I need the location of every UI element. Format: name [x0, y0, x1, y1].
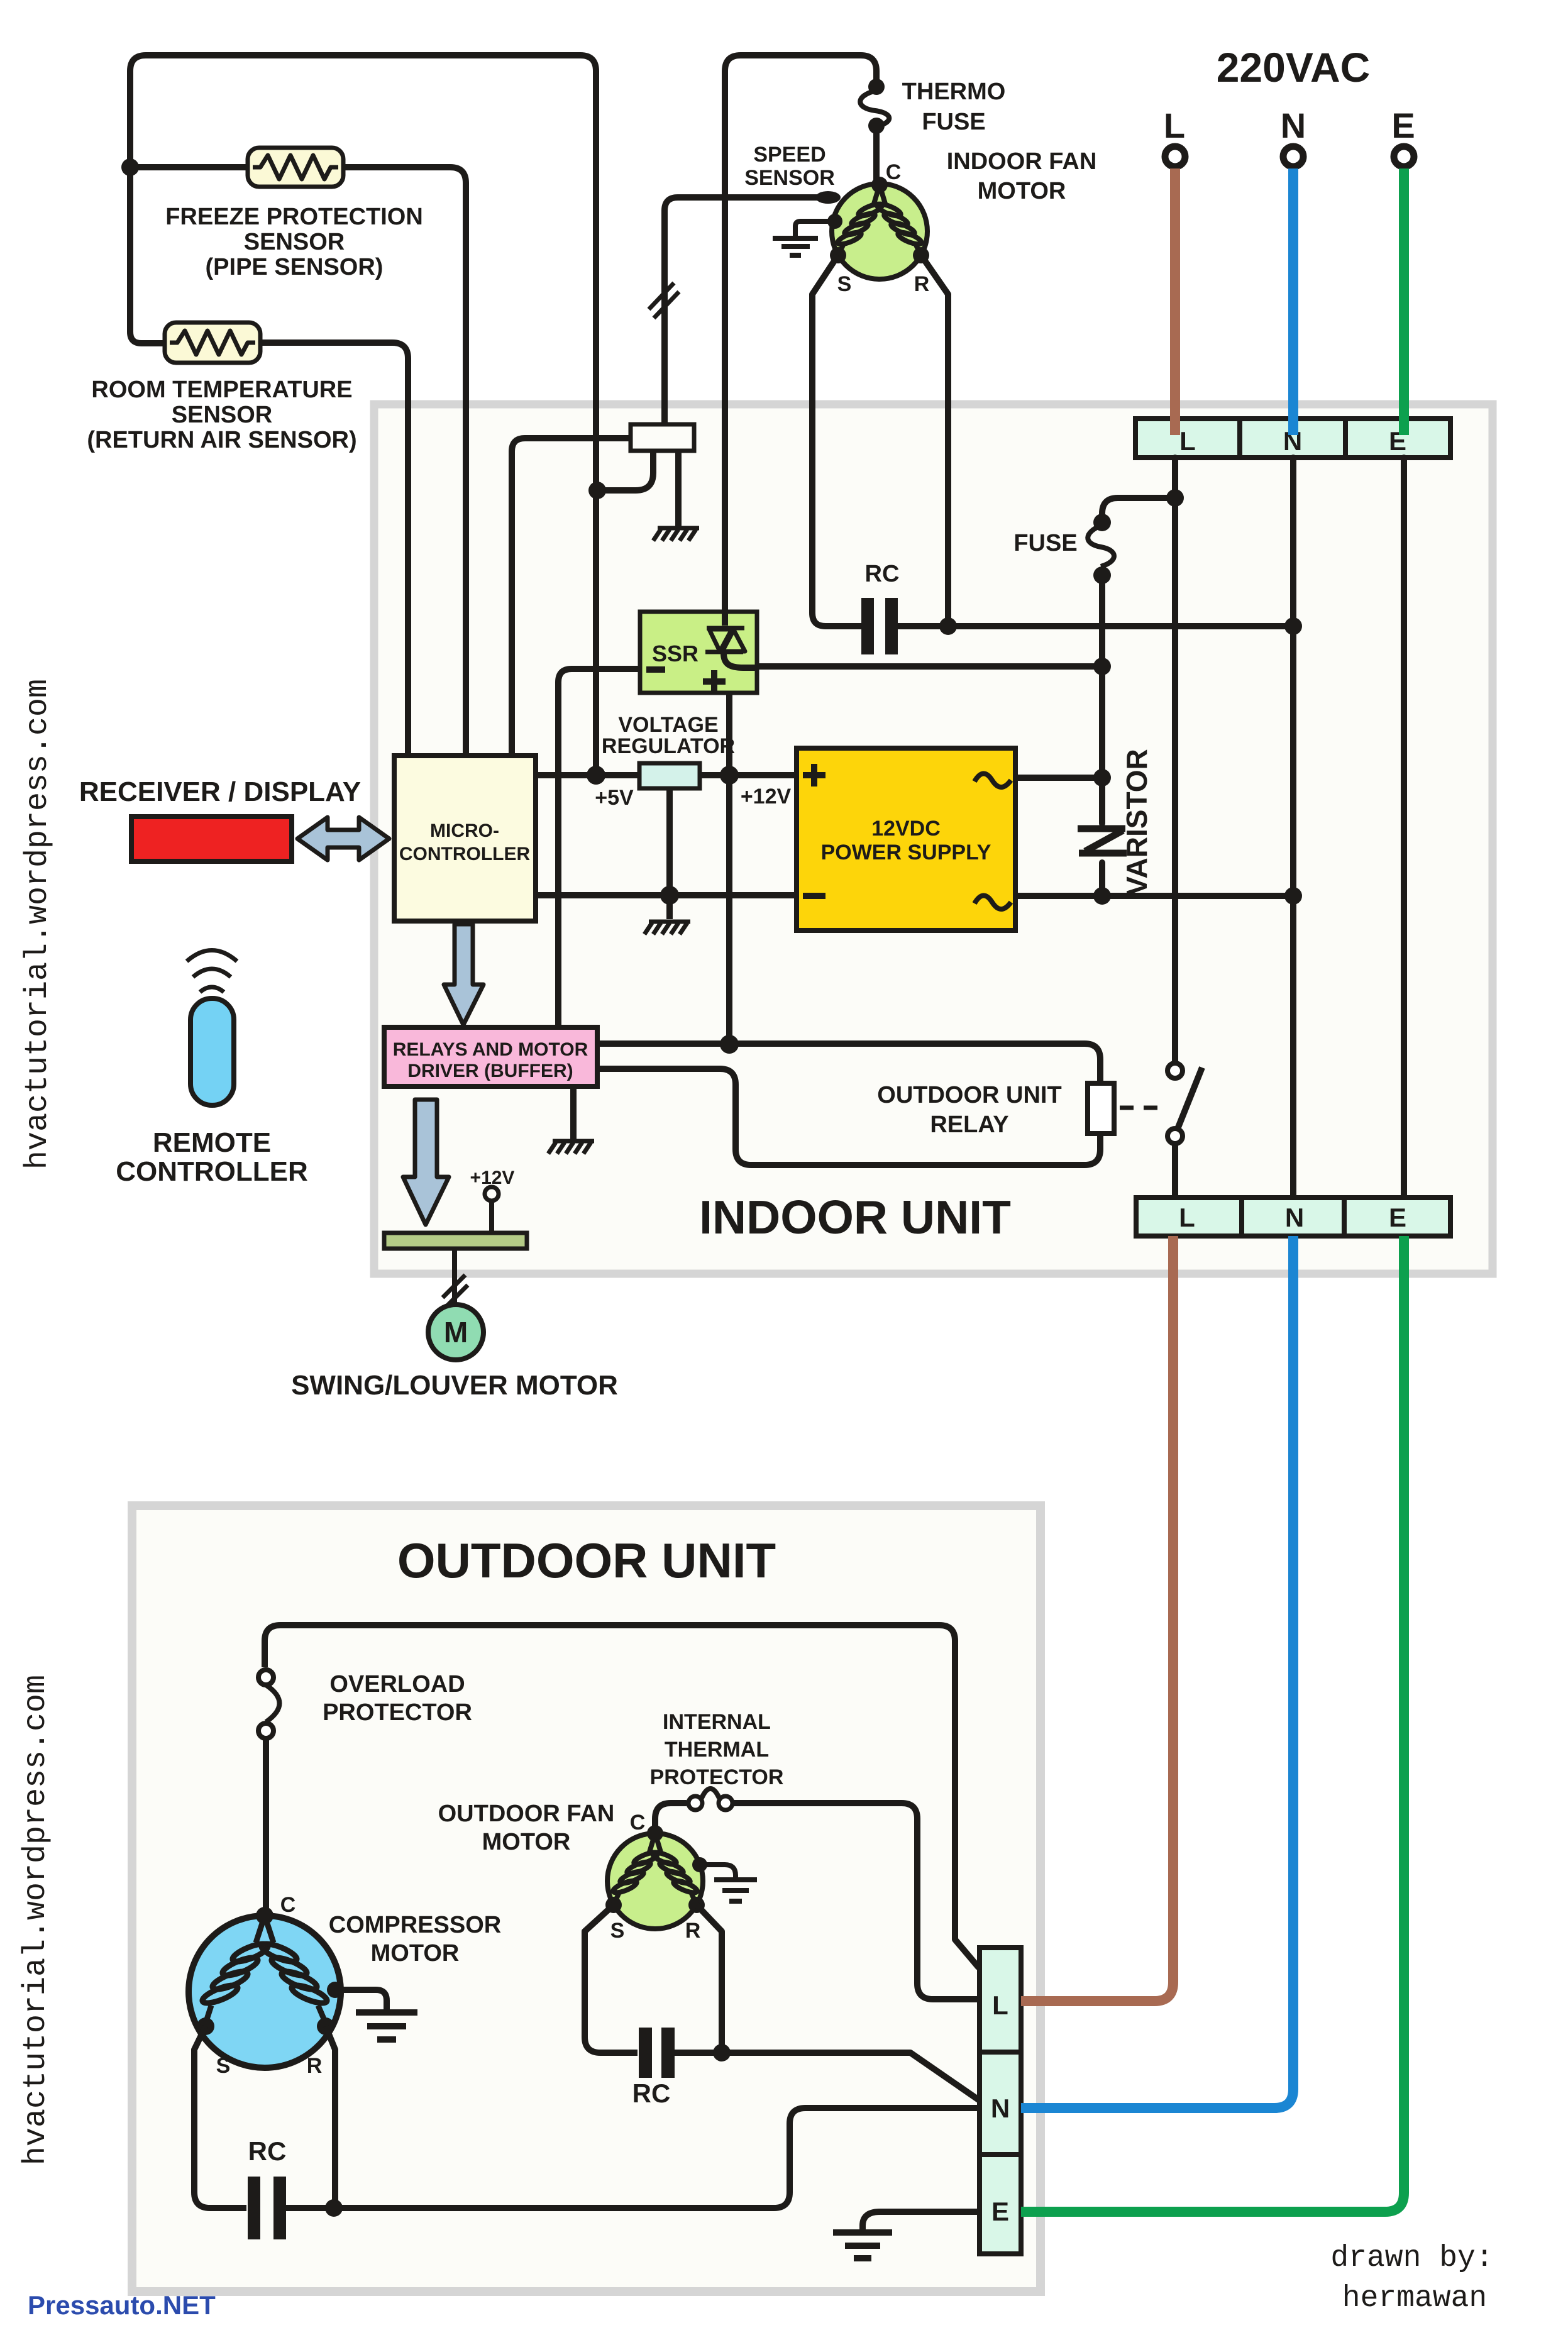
svg-text:L: L — [992, 1990, 1008, 2020]
svg-text:VOLTAGE: VOLTAGE — [618, 713, 718, 737]
svg-text:+12V: +12V — [741, 785, 792, 809]
svg-text:CONTROLLER: CONTROLLER — [399, 844, 531, 864]
svg-text:Pressauto.NET: Pressauto.NET — [28, 2290, 216, 2320]
svg-text:REGULATOR: REGULATOR — [602, 734, 735, 758]
svg-text:S: S — [837, 272, 852, 296]
svg-text:THERMO: THERMO — [902, 79, 1006, 105]
svg-text:PROTECTOR: PROTECTOR — [323, 1699, 472, 1726]
svg-text:OVERLOAD: OVERLOAD — [329, 1671, 465, 1697]
svg-text:12VDC: 12VDC — [871, 817, 941, 841]
svg-text:THERMAL: THERMAL — [665, 1738, 769, 1762]
svg-text:MICRO-: MICRO- — [430, 820, 499, 841]
svg-text:RECEIVER / DISPLAY: RECEIVER / DISPLAY — [79, 776, 361, 807]
svg-text:CONTROLLER: CONTROLLER — [116, 1156, 308, 1187]
svg-text:E: E — [991, 2197, 1009, 2226]
svg-text:OUTDOOR UNIT: OUTDOOR UNIT — [877, 1082, 1061, 1108]
svg-text:SENSOR: SENSOR — [744, 166, 835, 190]
svg-text:PROTECTOR: PROTECTOR — [650, 1765, 784, 1789]
svg-text:RELAYS AND MOTOR: RELAYS AND MOTOR — [393, 1039, 588, 1060]
svg-text:+5V: +5V — [595, 786, 634, 810]
svg-text:MOTOR: MOTOR — [371, 1940, 460, 1967]
svg-text:R: R — [307, 2054, 323, 2078]
svg-text:N: N — [991, 2094, 1010, 2123]
svg-text:N: N — [1285, 1203, 1304, 1232]
svg-text:hermawan: hermawan — [1342, 2282, 1487, 2315]
svg-text:REMOTE: REMOTE — [153, 1127, 271, 1158]
svg-text:E: E — [1389, 1203, 1406, 1232]
svg-text:L: L — [1179, 1203, 1195, 1232]
svg-text:(RETURN AIR SENSOR): (RETURN AIR SENSOR) — [87, 427, 356, 453]
svg-text:SENSOR: SENSOR — [244, 229, 345, 255]
svg-text:E: E — [1391, 106, 1415, 145]
svg-text:(PIPE SENSOR): (PIPE SENSOR) — [206, 254, 384, 280]
svg-text:R: R — [685, 1919, 701, 1943]
svg-text:RC: RC — [632, 2078, 671, 2108]
svg-text:OUTDOOR UNIT: OUTDOOR UNIT — [397, 1533, 776, 1588]
svg-text:M: M — [444, 1316, 468, 1349]
svg-text:INDOOR FAN: INDOOR FAN — [947, 148, 1097, 175]
svg-text:drawn by:: drawn by: — [1330, 2241, 1493, 2275]
svg-text:S: S — [216, 2054, 231, 2078]
svg-text:C: C — [886, 160, 902, 184]
svg-text:RC: RC — [865, 561, 900, 587]
svg-text:MOTOR: MOTOR — [482, 1829, 571, 1855]
svg-text:FREEZE PROTECTION: FREEZE PROTECTION — [165, 204, 423, 230]
svg-text:INDOOR UNIT: INDOOR UNIT — [699, 1191, 1011, 1244]
svg-text:R: R — [914, 272, 930, 296]
svg-text:INTERNAL: INTERNAL — [663, 1710, 771, 1734]
svg-text:SENSOR: SENSOR — [172, 402, 272, 428]
svg-text:MOTOR: MOTOR — [978, 178, 1066, 204]
svg-text:hvactutorial.wordpress.com: hvactutorial.wordpress.com — [18, 1675, 54, 2165]
svg-text:SSR: SSR — [652, 641, 698, 666]
svg-text:COMPRESSOR: COMPRESSOR — [329, 1912, 501, 1938]
svg-text:RELAY: RELAY — [930, 1112, 1008, 1138]
svg-text:ROOM TEMPERATURE: ROOM TEMPERATURE — [91, 377, 352, 403]
svg-text:DRIVER (BUFFER): DRIVER (BUFFER) — [407, 1061, 573, 1081]
svg-text:S: S — [610, 1919, 625, 1943]
svg-text:C: C — [280, 1893, 296, 1917]
svg-text:220VAC: 220VAC — [1217, 44, 1371, 91]
svg-text:OUTDOOR FAN: OUTDOOR FAN — [438, 1801, 615, 1827]
svg-text:SWING/LOUVER MOTOR: SWING/LOUVER MOTOR — [291, 1370, 618, 1401]
svg-text:hvactutorial.wordpress.com: hvactutorial.wordpress.com — [20, 679, 56, 1169]
svg-text:L: L — [1164, 106, 1185, 145]
svg-text:SPEED: SPEED — [753, 143, 825, 167]
svg-text:N: N — [1281, 106, 1306, 145]
svg-text:VARISTOR: VARISTOR — [1120, 749, 1153, 895]
svg-text:POWER SUPPLY: POWER SUPPLY — [821, 841, 991, 864]
svg-text:FUSE: FUSE — [922, 109, 985, 135]
svg-text:C: C — [630, 1811, 646, 1835]
svg-text:L: L — [1179, 426, 1196, 456]
svg-text:RC: RC — [248, 2136, 287, 2166]
svg-text:FUSE: FUSE — [1013, 530, 1077, 556]
